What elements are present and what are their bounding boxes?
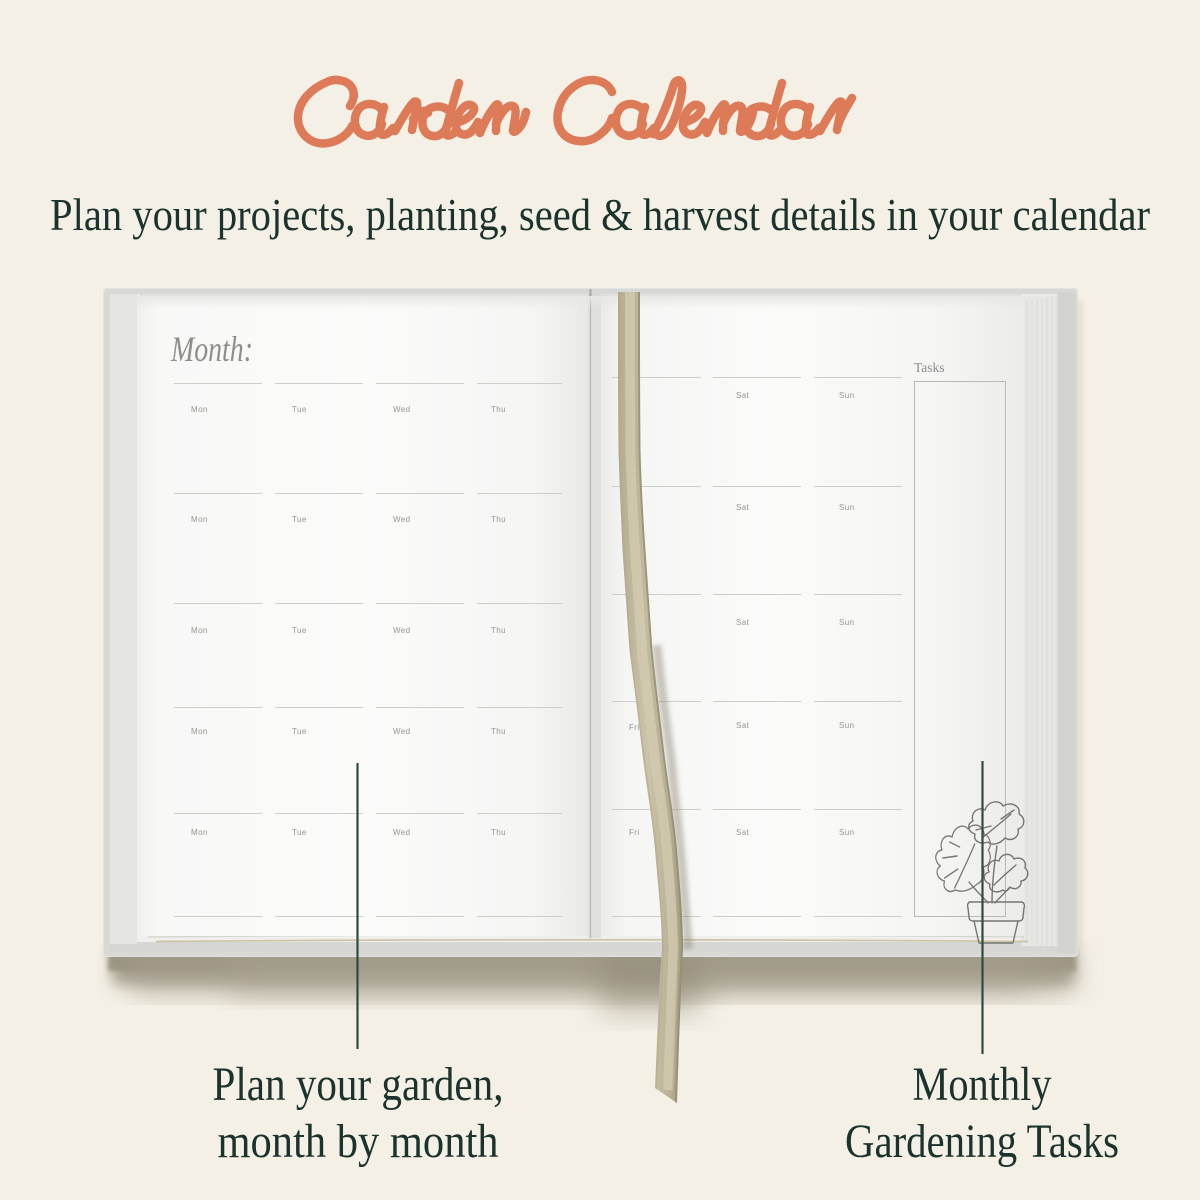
svg-text:Fri: Fri [629, 828, 640, 837]
svg-text:Thu: Thu [491, 626, 506, 635]
svg-text:Sun: Sun [839, 828, 854, 837]
svg-text:Tue: Tue [292, 515, 307, 524]
svg-text:Wed: Wed [393, 626, 411, 635]
svg-text:Gardening Tasks: Gardening Tasks [845, 1115, 1119, 1168]
svg-text:Plan your garden,: Plan your garden, [213, 1058, 504, 1111]
svg-text:Thu: Thu [491, 405, 506, 414]
svg-text:Plan your projects, planting,: Plan your projects, planting, seed & har… [50, 189, 1150, 240]
svg-text:Mon: Mon [191, 515, 208, 524]
svg-text:Fri: Fri [629, 723, 640, 732]
svg-text:Mon: Mon [191, 828, 208, 837]
svg-text:month by month: month by month [218, 1115, 499, 1168]
svg-text:Sat: Sat [736, 503, 750, 512]
svg-text:Monthly: Monthly [913, 1058, 1052, 1111]
svg-text:Mon: Mon [191, 405, 208, 414]
svg-text:Wed: Wed [393, 828, 411, 837]
svg-text:Tue: Tue [292, 828, 307, 837]
svg-text:Wed: Wed [393, 515, 411, 524]
svg-text:Sat: Sat [736, 391, 750, 400]
svg-text:Tue: Tue [292, 626, 307, 635]
svg-text:Sun: Sun [839, 391, 854, 400]
svg-text:Thu: Thu [491, 727, 506, 736]
svg-text:Wed: Wed [393, 727, 411, 736]
svg-text:Thu: Thu [491, 828, 506, 837]
svg-text:Tue: Tue [292, 405, 307, 414]
svg-text:Sun: Sun [839, 618, 854, 627]
svg-text:Sat: Sat [736, 721, 750, 730]
svg-text:Sat: Sat [736, 618, 750, 627]
svg-text:Wed: Wed [393, 405, 411, 414]
svg-text:Tasks: Tasks [914, 360, 945, 375]
svg-text:Mon: Mon [191, 626, 208, 635]
svg-text:Month:: Month: [170, 329, 253, 369]
svg-text:Tue: Tue [292, 727, 307, 736]
svg-text:Sun: Sun [839, 721, 854, 730]
svg-text:Thu: Thu [491, 515, 506, 524]
svg-text:Sun: Sun [839, 503, 854, 512]
svg-text:Mon: Mon [191, 727, 208, 736]
svg-text:Sat: Sat [736, 828, 750, 837]
